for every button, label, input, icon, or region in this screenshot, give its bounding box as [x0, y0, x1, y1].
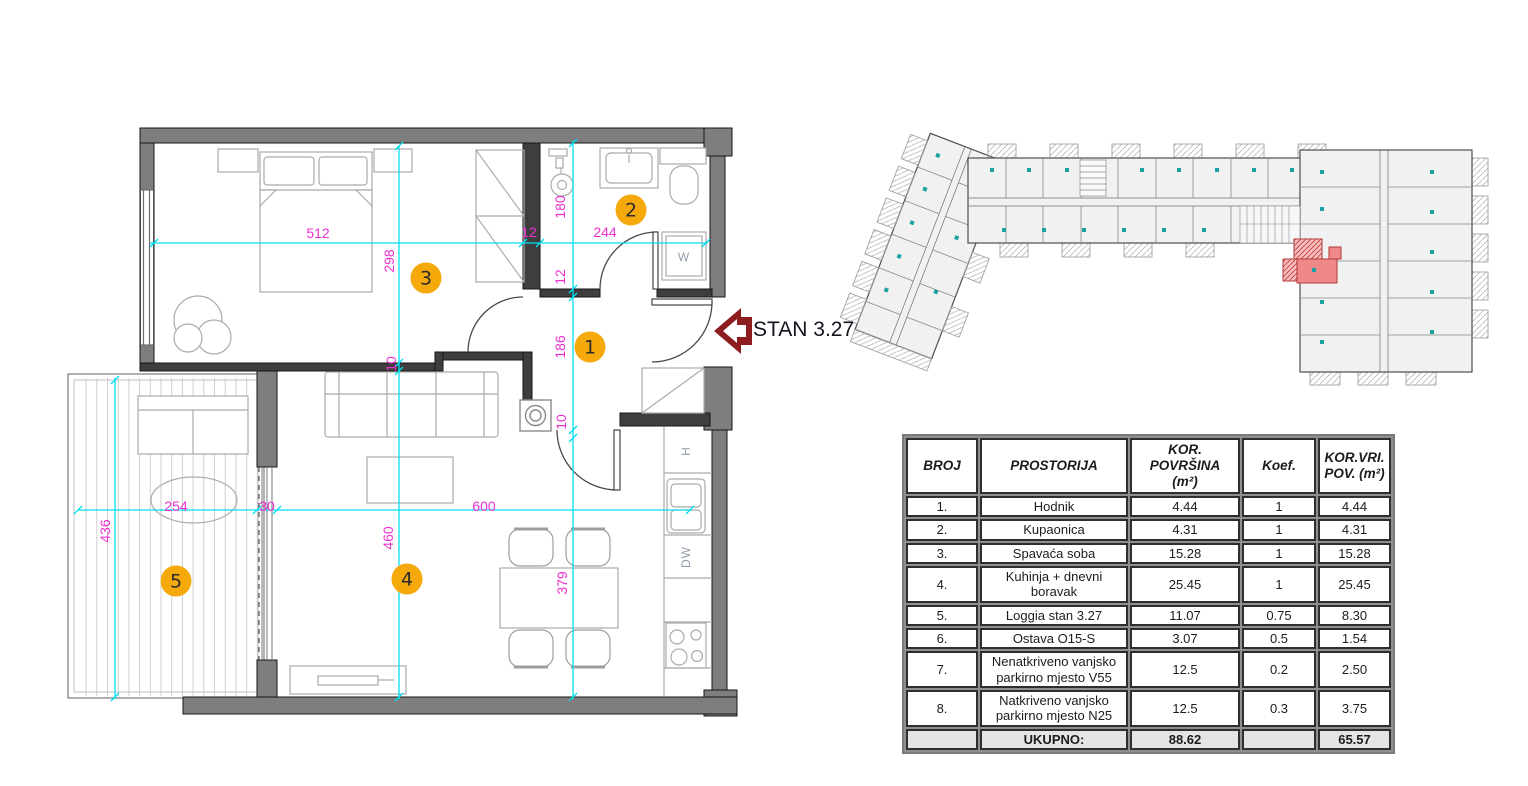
table-cell: 11.07	[1130, 605, 1240, 626]
table-total-cell	[1242, 729, 1316, 750]
table-cell: 0.3	[1242, 690, 1316, 727]
table-total-cell: UKUPNO:	[980, 729, 1128, 750]
table-cell: 4.31	[1318, 519, 1391, 540]
dimension-label: 298	[381, 249, 397, 272]
toilet	[660, 148, 706, 204]
table-cell: Loggia stan 3.27	[980, 605, 1128, 626]
table-cell: 12.5	[1130, 690, 1240, 727]
table-row: 5.Loggia stan 3.2711.070.758.30	[906, 605, 1391, 626]
table-header-cell: KOR.VRI. POV. (m²)	[1318, 438, 1391, 494]
area-table: BROJPROSTORIJAKOR. POVRŠINA (m²)Koef.KOR…	[902, 434, 1395, 754]
table-cell: 25.45	[1318, 566, 1391, 603]
table-row: 3.Spavaća soba15.28115.28	[906, 543, 1391, 564]
dimension-label: 12	[521, 224, 537, 240]
table-cell: 1	[1242, 519, 1316, 540]
living-door-leaf	[614, 430, 620, 490]
table-row: 2.Kupaonica4.3114.31	[906, 519, 1391, 540]
table-row: 8.Natkriveno vanjsko parkirno mjesto N25…	[906, 690, 1391, 727]
table-cell: 2.50	[1318, 651, 1391, 688]
dimension-label: 12	[552, 269, 568, 285]
appliance-label-h: H	[679, 446, 693, 456]
room-marker-1: 1	[575, 332, 606, 363]
table-cell: 4.44	[1318, 496, 1391, 517]
boiler	[520, 400, 551, 431]
dimension-label: 600	[472, 498, 495, 514]
table-header-cell: PROSTORIJA	[980, 438, 1128, 494]
dimension-label: 436	[97, 519, 113, 542]
table-cell: 7.	[906, 651, 978, 688]
table-cell: 4.	[906, 566, 978, 603]
building-overview	[834, 127, 1488, 385]
unit-label: STAN 3.27	[753, 318, 854, 342]
bedroom-door-arc	[468, 297, 523, 352]
table-cell: 15.28	[1318, 543, 1391, 564]
table-cell: Natkriveno vanjsko parkirno mjesto N25	[980, 690, 1128, 727]
unit-arrow-icon	[714, 308, 752, 354]
dimension-label: 460	[380, 526, 396, 549]
table-header-cell: Koef.	[1242, 438, 1316, 494]
table-cell: 15.28	[1130, 543, 1240, 564]
dimension-label: 10	[553, 414, 569, 430]
dimension-label: 379	[554, 571, 570, 594]
table-header-cell: KOR. POVRŠINA (m²)	[1130, 438, 1240, 494]
table-cell: Spavaća soba	[980, 543, 1128, 564]
table-cell: 3.	[906, 543, 978, 564]
table-cell: 3.07	[1130, 628, 1240, 649]
entry-door-leaf	[652, 299, 712, 305]
table-row: 4.Kuhinja + dnevni boravak25.45125.45	[906, 566, 1391, 603]
table-total-cell: 65.57	[1318, 729, 1391, 750]
dimension-label: 254	[164, 498, 187, 514]
table-cell: 1	[1242, 496, 1316, 517]
room-marker-3: 3	[411, 263, 442, 294]
table-cell: 25.45	[1130, 566, 1240, 603]
bathroom-door-leaf	[653, 232, 658, 289]
room-marker-4: 4	[392, 564, 423, 595]
table-row: 6.Ostava O15-S3.070.51.54	[906, 628, 1391, 649]
table-row: 7.Nenatkriveno vanjsko parkirno mjesto V…	[906, 651, 1391, 688]
cooktop	[666, 623, 706, 668]
appliance-label-w: W	[678, 250, 690, 264]
table-cell: Kuhinja + dnevni boravak	[980, 566, 1128, 603]
table-total-cell	[906, 729, 978, 750]
table-cell: Ostava O15-S	[980, 628, 1128, 649]
bathroom-door-arc	[600, 232, 657, 289]
table-cell: 8.30	[1318, 605, 1391, 626]
living-sofa	[325, 372, 498, 437]
bathroom-sink	[600, 148, 658, 188]
room-marker-2: 2	[616, 195, 647, 226]
table-header-cell: BROJ	[906, 438, 978, 494]
coffee-table	[367, 457, 453, 503]
armchair	[174, 296, 231, 354]
dimension-label: 512	[306, 225, 329, 241]
table-cell: Kupaonica	[980, 519, 1128, 540]
table-total-row: UKUPNO:88.6265.57	[906, 729, 1391, 750]
table-cell: 1.54	[1318, 628, 1391, 649]
table-cell: 3.75	[1318, 690, 1391, 727]
area-table-body: 1.Hodnik4.4414.442.Kupaonica4.3114.313.S…	[906, 496, 1391, 750]
bedroom-window	[141, 190, 153, 345]
table-cell: 5.	[906, 605, 978, 626]
table-cell: 4.44	[1130, 496, 1240, 517]
hall-closet	[642, 368, 704, 413]
dimension-label: 180	[552, 195, 568, 218]
area-table-header: BROJPROSTORIJAKOR. POVRŠINA (m²)Koef.KOR…	[906, 438, 1391, 494]
dimension-label: 186	[552, 335, 568, 358]
shower-fixture	[549, 149, 573, 196]
entry-door-arc	[652, 302, 712, 362]
storage-lockers	[1240, 206, 1300, 243]
table-cell: 0.2	[1242, 651, 1316, 688]
table-row: 1.Hodnik4.4414.44	[906, 496, 1391, 517]
table-cell: 1	[1242, 566, 1316, 603]
table-cell: 2.	[906, 519, 978, 540]
table-cell: 0.5	[1242, 628, 1316, 649]
dimension-label: 30	[259, 498, 275, 514]
stairwell-icon	[1080, 160, 1106, 196]
dimension-label: 244	[593, 224, 616, 240]
table-cell: 4.31	[1130, 519, 1240, 540]
table-cell: 8.	[906, 690, 978, 727]
living-door-arc	[557, 430, 617, 490]
table-cell: 6.	[906, 628, 978, 649]
table-total-cell: 88.62	[1130, 729, 1240, 750]
table-cell: 1	[1242, 543, 1316, 564]
tv-bench	[290, 666, 406, 694]
table-cell: 0.75	[1242, 605, 1316, 626]
dining-set	[500, 529, 618, 667]
bedroom-wardrobe	[476, 150, 524, 282]
dimension-label: 10	[383, 356, 399, 372]
architectural-sheet: STAN 3.27 512122442981046018012186103792…	[0, 0, 1528, 786]
room-marker-5: 5	[161, 566, 192, 597]
table-cell: Hodnik	[980, 496, 1128, 517]
appliance-label-dw: DW	[679, 546, 693, 568]
loggia-sliding-door	[259, 467, 272, 660]
table-cell: Nenatkriveno vanjsko parkirno mjesto V55	[980, 651, 1128, 688]
loggia-sofa	[138, 396, 248, 454]
table-cell: 12.5	[1130, 651, 1240, 688]
table-cell: 1.	[906, 496, 978, 517]
